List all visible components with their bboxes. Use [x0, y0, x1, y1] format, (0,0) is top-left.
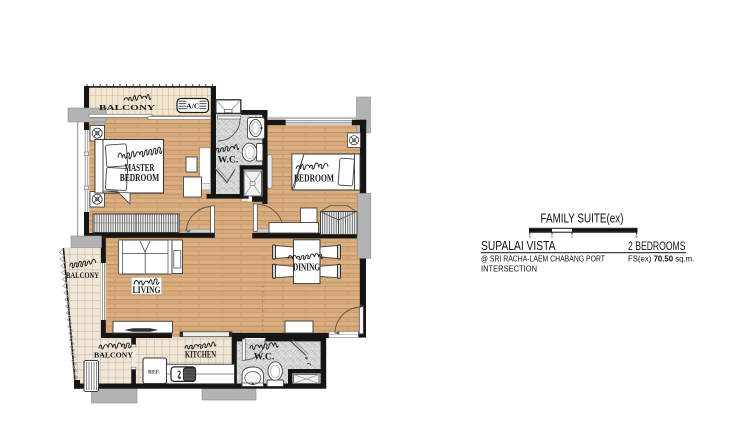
- svg-text:@ SRI RACHA-LAEM CHABANG PORT: @ SRI RACHA-LAEM CHABANG PORT: [481, 255, 605, 264]
- svg-text:5: 5: [636, 235, 638, 239]
- svg-text:REF.: REF.: [148, 370, 161, 376]
- svg-text:W.C.: W.C.: [218, 154, 239, 164]
- svg-text:2: 2: [571, 235, 573, 239]
- svg-text:INTERSECTION: INTERSECTION: [481, 265, 537, 274]
- svg-text:DINING: DINING: [293, 263, 320, 274]
- svg-text:BALCONY: BALCONY: [94, 351, 134, 360]
- svg-text:A/C: A/C: [186, 102, 199, 111]
- svg-text:BALCONY: BALCONY: [99, 103, 156, 112]
- svg-text:SUPALAI VISTA: SUPALAI VISTA: [481, 238, 556, 253]
- svg-text:FAMILY SUITE(ex): FAMILY SUITE(ex): [541, 212, 624, 226]
- svg-text:2 BEDROOMS: 2 BEDROOMS: [628, 240, 686, 253]
- svg-text:BEDROOM: BEDROOM: [294, 174, 334, 185]
- svg-text:FS(ex) 70.50 sq.m.: FS(ex) 70.50 sq.m.: [628, 255, 694, 264]
- svg-text:KITCHEN: KITCHEN: [185, 350, 216, 360]
- svg-text:BALCONY: BALCONY: [66, 271, 99, 280]
- svg-text:W.C.: W.C.: [254, 352, 275, 362]
- svg-text:LIVING: LIVING: [133, 286, 161, 296]
- svg-text:BEDROOM: BEDROOM: [120, 173, 160, 184]
